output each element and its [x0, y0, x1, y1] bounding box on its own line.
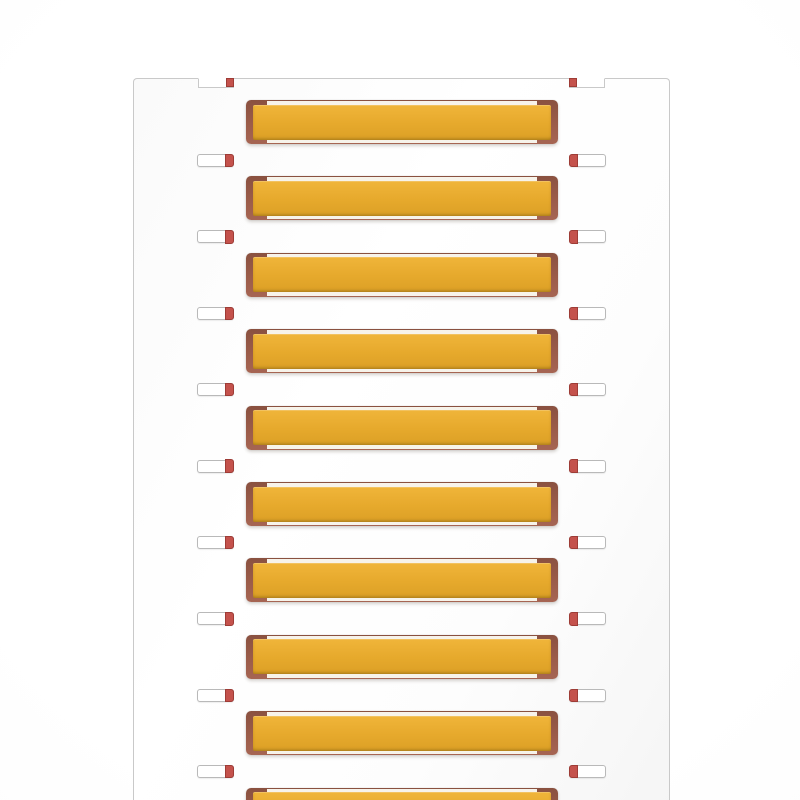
registration-mark: [569, 383, 578, 396]
marker-strip-face: [253, 487, 551, 522]
registration-mark: [569, 307, 578, 320]
marker-strip-face: [253, 639, 551, 674]
registration-mark: [569, 459, 578, 472]
marker-strip-face: [253, 716, 551, 751]
break-off-tab-right: [569, 383, 606, 396]
break-off-tab-left: [197, 154, 234, 167]
marker-strip: [246, 176, 558, 220]
marker-strip: [246, 253, 558, 297]
registration-mark: [225, 154, 234, 167]
break-off-tab-left: [197, 307, 234, 320]
registration-mark: [226, 78, 234, 87]
registration-mark: [569, 536, 578, 549]
product-photo: [0, 0, 800, 800]
break-off-tab-left: [197, 765, 234, 778]
registration-mark: [225, 689, 234, 702]
marker-strip-face: [253, 792, 551, 800]
marker-strip-face: [253, 181, 551, 216]
registration-mark: [225, 536, 234, 549]
break-off-tab-right: [569, 307, 606, 320]
break-off-tab-left: [197, 230, 234, 243]
marker-strip: [246, 100, 558, 144]
break-off-tab-right: [569, 230, 606, 243]
break-off-tab-left: [197, 612, 234, 625]
registration-mark: [569, 78, 577, 87]
marker-strip: [246, 558, 558, 602]
registration-mark: [225, 230, 234, 243]
marker-strip: [246, 788, 558, 800]
marker-carrier-card: [133, 78, 670, 800]
marker-strip-face: [253, 334, 551, 369]
marker-strip: [246, 482, 558, 526]
break-off-tab-right: [569, 460, 606, 473]
marker-strip-face: [253, 105, 551, 140]
break-off-tab-left: [197, 383, 234, 396]
marker-strip-face: [253, 563, 551, 598]
registration-mark: [225, 765, 234, 778]
break-off-tab-right: [569, 765, 606, 778]
marker-strip: [246, 711, 558, 755]
registration-mark: [569, 154, 578, 167]
break-off-tab-left: [197, 460, 234, 473]
marker-strip-face: [253, 257, 551, 292]
marker-strip: [246, 406, 558, 450]
top-notch-right: [569, 78, 605, 88]
registration-mark: [225, 383, 234, 396]
marker-strip-face: [253, 410, 551, 445]
registration-mark: [225, 307, 234, 320]
break-off-tab-right: [569, 154, 606, 167]
break-off-tab-right: [569, 612, 606, 625]
break-off-tab-right: [569, 689, 606, 702]
break-off-tab-left: [197, 689, 234, 702]
registration-mark: [569, 765, 578, 778]
registration-mark: [569, 230, 578, 243]
break-off-tab-left: [197, 536, 234, 549]
break-off-tab-right: [569, 536, 606, 549]
registration-mark: [225, 612, 234, 625]
marker-strip: [246, 635, 558, 679]
marker-strip: [246, 329, 558, 373]
registration-mark: [569, 612, 578, 625]
top-notch-left: [198, 78, 234, 88]
registration-mark: [225, 459, 234, 472]
registration-mark: [569, 689, 578, 702]
